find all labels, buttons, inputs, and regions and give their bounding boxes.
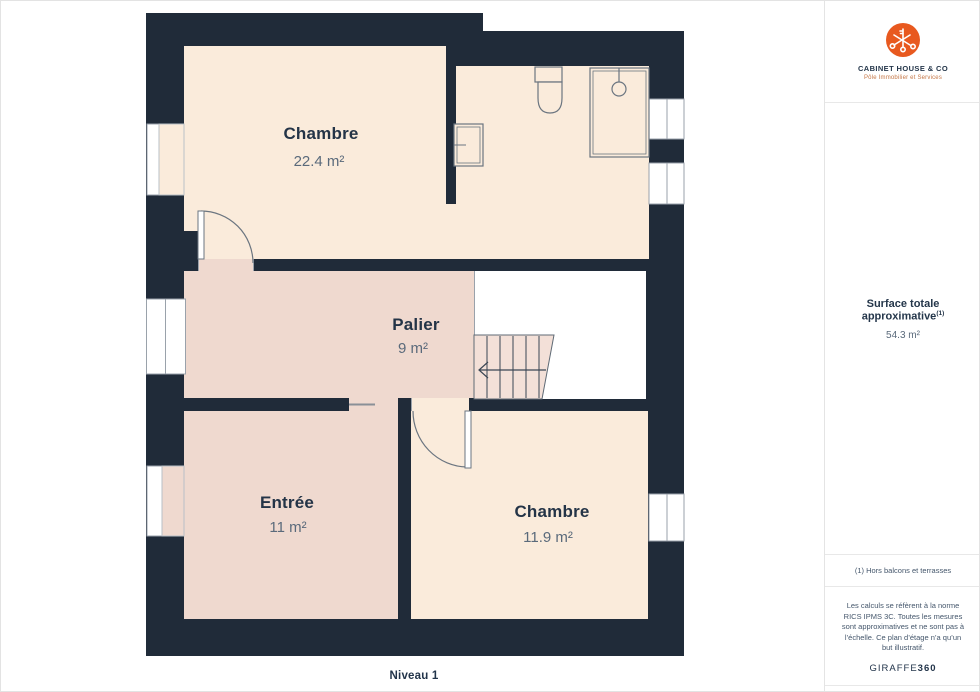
room-area-bedroom-large: 22.4 m²: [294, 153, 345, 170]
info-panel: CABINET HOUSE & CO Pôle Immobilier et Se…: [824, 1, 980, 692]
wall-pier: [184, 231, 198, 271]
room-area-entry: 11 m²: [269, 519, 306, 536]
total-surface-value: 54.3 m²: [825, 330, 980, 341]
floorplan-drawing: Chambre 22.4 m² Palier 9 m² Entrée 11 m²…: [1, 1, 824, 692]
brand-name: GIRAFFE: [869, 663, 917, 674]
room-entry: [184, 411, 398, 619]
doorway-bedroom-small: [411, 398, 469, 411]
room-label-landing: Palier: [392, 315, 440, 334]
window-right-bathroom-lower: [649, 163, 684, 204]
agency-logo-icon: [885, 22, 921, 58]
room-landing: [184, 271, 474, 398]
window-left-entry: [147, 466, 184, 536]
sink-fixture: [454, 124, 483, 166]
legal-block: Les calculs se réfèrent à la norme RICS …: [825, 587, 980, 686]
total-surface-label: Surface totale approximative(1): [825, 298, 980, 323]
total-surface-text: Surface totale approximative: [862, 298, 940, 323]
toilet-fixture: [535, 67, 562, 113]
agency-name: CABINET HOUSE & CO: [858, 64, 948, 73]
agency-logo-block: CABINET HOUSE & CO Pôle Immobilier et Se…: [825, 1, 980, 103]
room-label-bedroom-large: Chambre: [283, 124, 358, 143]
window-right-bedroom: [649, 494, 684, 541]
agency-tagline: Pôle Immobilier et Services: [864, 75, 942, 81]
window-left-bedroom: [147, 124, 184, 195]
room-area-landing: 9 m²: [398, 340, 428, 357]
total-surface-block: Surface totale approximative(1) 54.3 m²: [825, 298, 980, 341]
room-label-bedroom-small: Chambre: [514, 502, 589, 521]
level-label: Niveau 1: [390, 670, 439, 682]
window-left-landing: [147, 299, 186, 374]
window-right-bathroom-upper: [649, 99, 684, 139]
giraffe360-brand: GIRAFFE360: [825, 663, 980, 674]
footnote-block: (1) Hors balcons et terrasses: [825, 554, 980, 587]
footnote-marker: (1): [936, 310, 944, 317]
legal-disclaimer: Les calculs se réfèrent à la norme RICS …: [839, 601, 967, 654]
floorplan-page: Chambre 22.4 m² Palier 9 m² Entrée 11 m²…: [0, 0, 980, 692]
brand-suffix: 360: [918, 663, 937, 674]
room-label-entry: Entrée: [260, 493, 314, 512]
staircase: [474, 335, 554, 399]
doorway-bedroom-large: [198, 259, 254, 271]
room-area-bedroom-small: 11.9 m²: [523, 529, 573, 546]
